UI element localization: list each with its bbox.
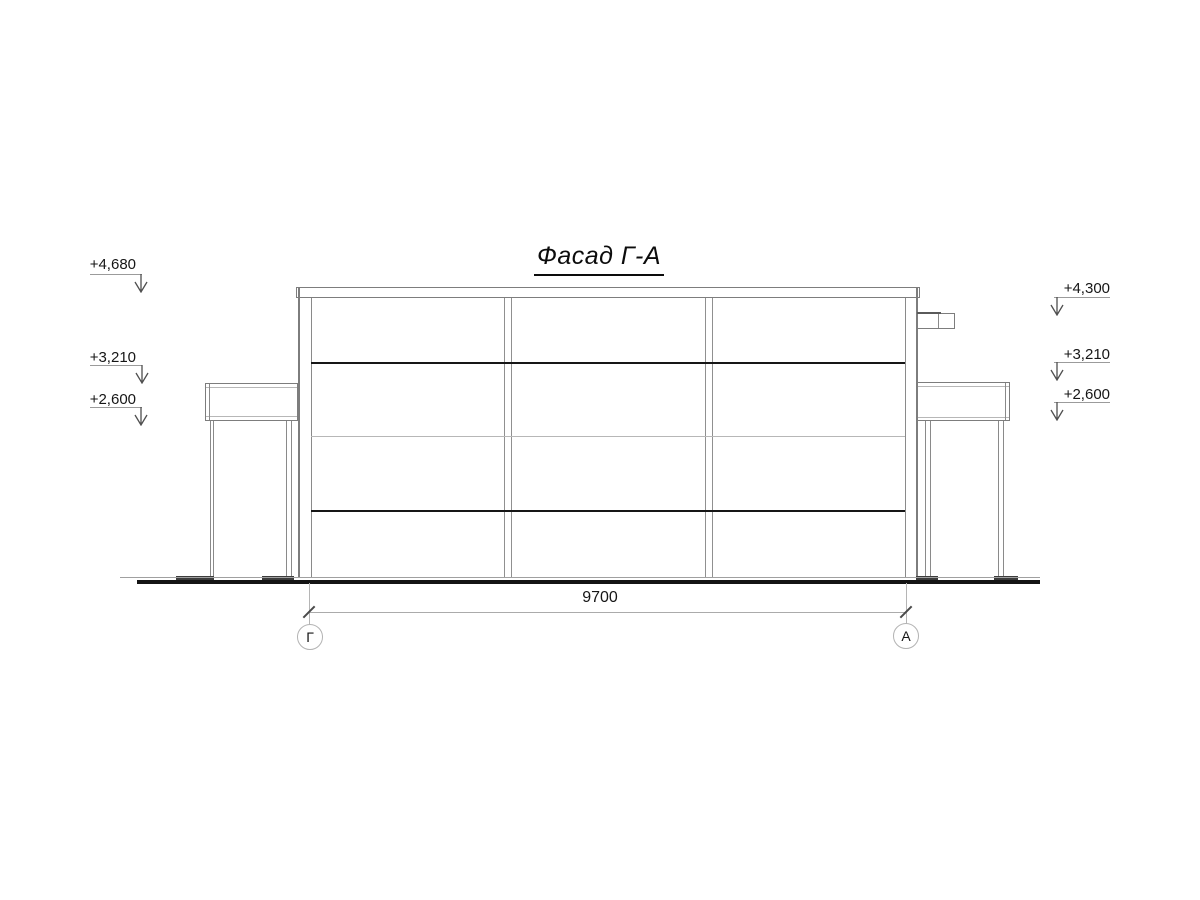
right-canopy-outer-leg	[998, 421, 1004, 577]
elevation-arrow-icon	[1049, 402, 1065, 421]
roof-beam-joint-line	[938, 313, 939, 328]
floor-band-line-lower	[311, 510, 905, 512]
elevation-arrow-icon	[133, 274, 149, 293]
right-canopy-inner-top-line	[918, 386, 1009, 387]
right-canopy-inner-leg	[925, 421, 931, 577]
elevation-mark-value: +4,680	[86, 256, 136, 273]
axis-marker-circle-right: А	[893, 623, 919, 649]
left-canopy-inner-bottom-line	[206, 416, 297, 417]
left-canopy-inner-leg	[286, 421, 292, 577]
dimension-extension-line-left	[309, 583, 310, 626]
axis-marker-circle-left: Г	[297, 624, 323, 650]
elevation-arrow-icon	[1049, 362, 1065, 381]
window-mullion-right	[705, 298, 713, 577]
axis-marker-label: Г	[306, 629, 314, 645]
elevation-arrow-icon	[1049, 297, 1065, 316]
ground-line-thin	[120, 577, 1040, 578]
ground-line-thick	[137, 580, 1040, 584]
facade-elevation-drawing: Фасад Г-А +4,680 +3,210 +2,600 +4,300	[0, 0, 1200, 900]
floor-band-line-middle	[311, 436, 905, 437]
roof-beam-top-edge	[917, 312, 941, 314]
right-wall-line	[916, 288, 918, 578]
dimension-extension-line-right	[906, 583, 907, 625]
floor-band-line-upper	[311, 362, 905, 364]
right-canopy-inner-edge-line	[1005, 383, 1006, 420]
right-canopy-inner-bottom-line	[918, 417, 1009, 418]
axis-marker-label: А	[901, 628, 910, 644]
drawing-title: Фасад Г-А	[534, 242, 664, 276]
left-canopy-inner-edge-line	[209, 384, 210, 420]
elevation-mark-value: +4,300	[1062, 280, 1110, 297]
dimension-value: 9700	[568, 589, 632, 607]
window-mullion-left	[504, 298, 512, 577]
elevation-arrow-icon	[134, 365, 150, 384]
elevation-mark-value: +3,210	[86, 349, 136, 366]
left-canopy-outer-leg	[210, 421, 214, 577]
right-canopy-band	[917, 382, 1010, 421]
roof-beam	[917, 313, 955, 329]
elevation-mark-value: +2,600	[1062, 386, 1110, 403]
left-wall-inner-line	[311, 298, 312, 577]
right-wall-inner-line	[905, 298, 906, 577]
elevation-arrow-icon	[133, 407, 149, 426]
dimension-line	[309, 612, 907, 613]
parapet-band	[296, 287, 920, 298]
elevation-mark-value: +2,600	[86, 391, 136, 408]
elevation-mark-value: +3,210	[1062, 346, 1110, 363]
left-wall-line	[298, 288, 300, 578]
left-canopy-inner-top-line	[206, 387, 297, 388]
